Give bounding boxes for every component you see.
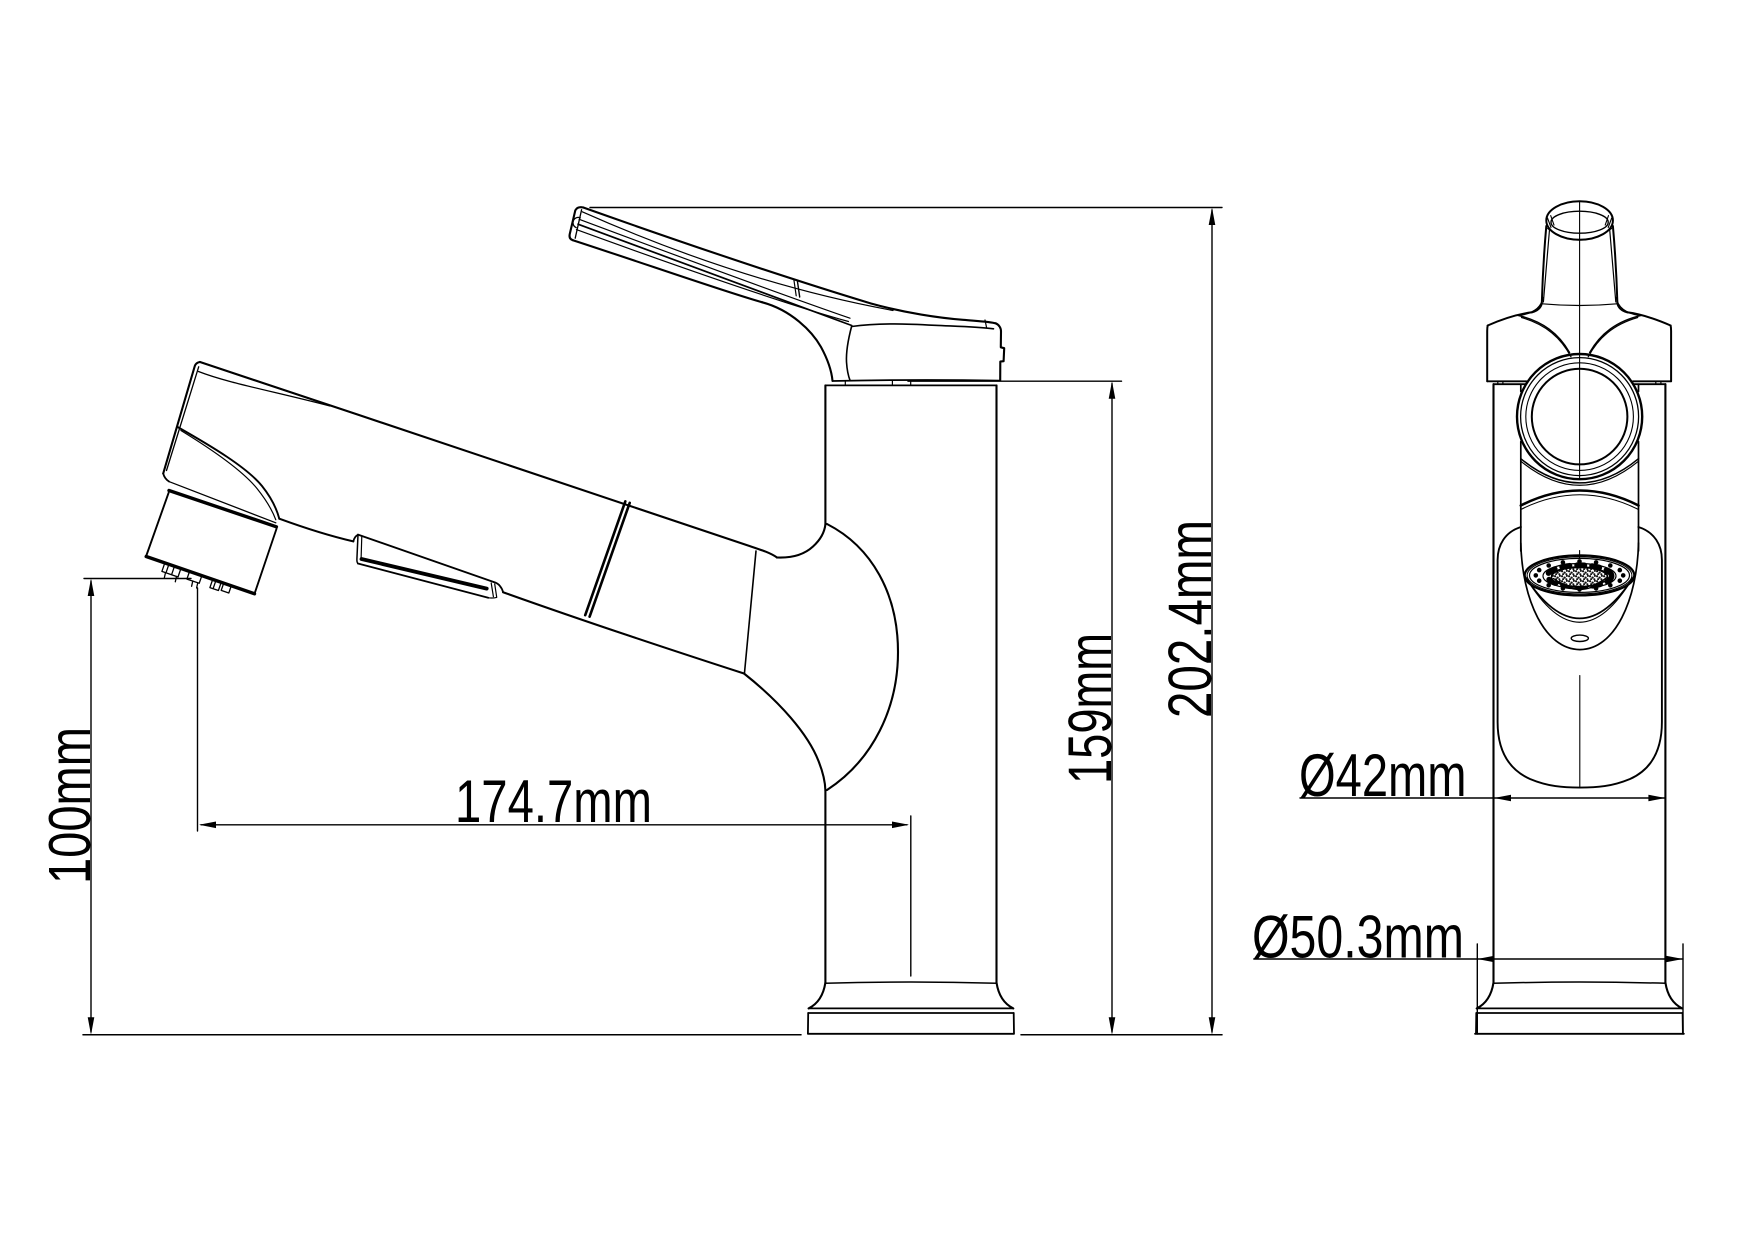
svg-text:100mm: 100mm <box>37 727 103 884</box>
svg-text:174.7mm: 174.7mm <box>455 768 652 835</box>
svg-text:202.4mm: 202.4mm <box>1156 520 1224 718</box>
svg-text:159mm: 159mm <box>1056 633 1124 784</box>
svg-text:Ø50.3mm: Ø50.3mm <box>1252 904 1464 971</box>
svg-text:Ø42mm: Ø42mm <box>1299 742 1467 809</box>
